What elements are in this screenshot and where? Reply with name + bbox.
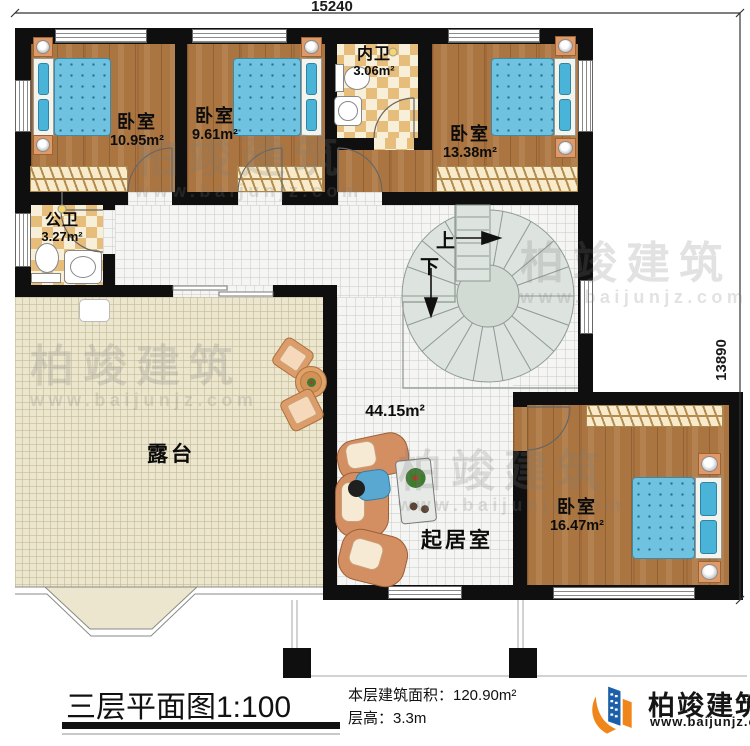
plan-title: 三层平面图1:100 [66, 682, 291, 726]
room-name: 内卫 [332, 46, 416, 64]
room-area: 3.06m² [332, 64, 416, 79]
stair-up-text: 上 [436, 231, 455, 252]
room-name: 卧室 [527, 497, 627, 518]
room-area: 13.38m² [420, 145, 520, 162]
title-underline [62, 722, 340, 729]
brand-logo-icon [588, 680, 644, 738]
room-label-bath-public: 公卫 3.27m² [20, 212, 104, 245]
room-area: 16.47m² [527, 518, 627, 535]
plan-title-text: 三层平面图 [66, 691, 216, 724]
floor-info: 本层建筑面积：120.90m² 层高：3.3m [348, 684, 516, 731]
porch-lines [292, 600, 747, 676]
spiral-staircase [402, 205, 578, 388]
floor-plan: 柏竣建筑 www.baijunjz.com 柏竣建筑 www.baijunjz.… [0, 0, 750, 746]
dimension-width: 15240 [300, 0, 364, 15]
dimension-height-value: 13890 [713, 339, 730, 381]
stair-down-text: 下 [420, 257, 439, 278]
room-label-bath-inner: 内卫 3.06m² [332, 46, 416, 79]
brand-url: www.baijunjz.com [650, 714, 750, 729]
stair-up-label: 上 [436, 226, 455, 253]
room-label-bedroom-br: 卧室 16.47m² [527, 497, 627, 534]
room-label-living: 起居室 [421, 524, 493, 554]
floor-height-line: 层高：3.3m [348, 707, 516, 730]
room-name: 公卫 [20, 212, 104, 230]
room-label-terrace: 露台 [147, 438, 195, 468]
dimension-height: 13890 [686, 325, 750, 395]
bay-window [15, 587, 323, 636]
room-name: 露台 [147, 443, 195, 466]
sliding-door [173, 286, 273, 296]
room-label-bedroom-tm: 卧室 9.61m² [165, 106, 265, 143]
room-area: 9.61m² [165, 127, 265, 144]
floor-area-line: 本层建筑面积：120.90m² [348, 684, 516, 707]
dimension-width-value: 15240 [311, 0, 353, 15]
room-label-bedroom-tr: 卧室 13.38m² [420, 124, 520, 161]
room-name: 卧室 [420, 124, 520, 145]
stair-down-label: 下 [420, 252, 439, 279]
living-area-value: 44.15m² [355, 403, 435, 421]
brand-url-text: www.baijunjz.com [650, 714, 750, 729]
title-underline-thin [62, 733, 340, 735]
room-name: 卧室 [165, 106, 265, 127]
dimension-lines [11, 9, 744, 604]
room-name: 起居室 [421, 529, 493, 552]
plan-scale: 1:100 [216, 691, 291, 724]
room-area: 3.27m² [20, 230, 104, 245]
room-area: 44.15m² [355, 403, 435, 421]
